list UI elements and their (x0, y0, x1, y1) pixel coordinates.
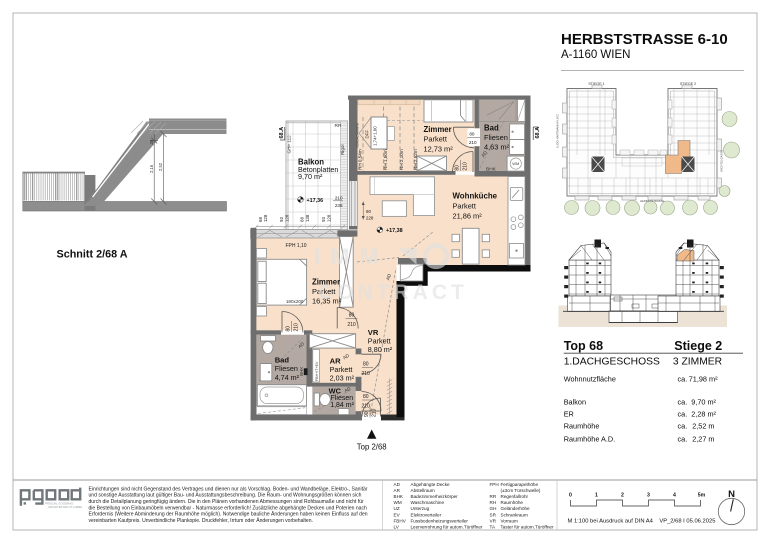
svg-text:Fertigparapethöhe: Fertigparapethöhe (501, 482, 539, 487)
svg-text:68.A: 68.A (535, 127, 541, 139)
svg-text:FPH 1,10: FPH 1,10 (285, 243, 306, 249)
svg-text:210: 210 (469, 140, 477, 145)
svg-text:68: 68 (300, 217, 305, 222)
svg-text:Raumhöhe A.D.: Raumhöhe A.D. (564, 434, 616, 443)
svg-text:138: 138 (305, 214, 310, 222)
svg-text:Fliesen: Fliesen (331, 395, 354, 402)
svg-text:4: 4 (673, 493, 676, 499)
svg-text:210: 210 (293, 323, 299, 332)
svg-text:Parkett: Parkett (424, 134, 447, 143)
svg-text:2: 2 (621, 493, 624, 499)
svg-text:A-1160 WIEN: A-1160 WIEN (561, 49, 630, 61)
svg-text:WM: WM (394, 500, 402, 505)
svg-text:210: 210 (347, 322, 356, 328)
svg-text:5m: 5m (698, 493, 706, 499)
svg-text:IMM: IMM (314, 244, 389, 270)
svg-text:AD: AD (394, 482, 401, 487)
svg-text:M 1:100 bei Ausdruck auf DIN A: M 1:100 bei Ausdruck auf DIN A4 VP_2/68 … (568, 519, 716, 525)
svg-text:LV: LV (394, 525, 400, 530)
svg-text:2,27 m: 2,27 m (692, 434, 714, 443)
svg-text:ca.: ca. (678, 397, 688, 406)
svg-text:LUDO-HARTMANN-PLATZ: LUDO-HARTMANN-PLATZ (556, 114, 560, 148)
svg-text:3: 3 (647, 493, 650, 499)
svg-text:2,28 m²: 2,28 m² (691, 410, 716, 419)
svg-text:GH: GH (490, 506, 497, 511)
svg-text:210: 210 (335, 195, 343, 200)
svg-text:80: 80 (349, 313, 355, 319)
svg-text:BHK: BHK (299, 366, 304, 376)
svg-text:2,03 m²: 2,03 m² (330, 373, 355, 382)
svg-text:4,63 m²: 4,63 m² (484, 143, 510, 152)
svg-text:Raumhöhe: Raumhöhe (501, 500, 524, 505)
svg-text:80: 80 (469, 131, 475, 136)
svg-text:238: 238 (335, 203, 343, 208)
svg-text:DFF: DFF (364, 130, 369, 139)
svg-text:durch die Detailplanung gering: durch die Detailplanung geringfügig ände… (89, 499, 365, 505)
svg-text:128: 128 (326, 214, 331, 222)
svg-text:+17,38: +17,38 (386, 228, 403, 234)
svg-text:FBHV: FBHV (394, 518, 407, 523)
svg-text:Bad: Bad (484, 124, 499, 133)
svg-text:,38: ,38 (149, 139, 154, 145)
svg-text:4,74 m²: 4,74 m² (275, 373, 300, 382)
svg-text:SR: SR (490, 512, 497, 517)
svg-text:ca.: ca. (678, 410, 688, 419)
svg-text:93: 93 (279, 217, 284, 222)
svg-text:80: 80 (285, 326, 291, 332)
svg-text:9,70 m²: 9,70 m² (298, 172, 323, 181)
svg-text:Elektroverteiler: Elektroverteiler (411, 512, 442, 517)
svg-text:WC: WC (329, 386, 342, 395)
svg-text:1,84 m²: 1,84 m² (330, 402, 354, 409)
svg-text:+17,36: +17,36 (307, 198, 324, 204)
svg-text:210: 210 (462, 162, 468, 171)
svg-text:RH 2,52m: RH 2,52m (413, 149, 418, 170)
svg-text:180x200: 180x200 (286, 299, 304, 304)
svg-text:Wohnnutzfläche: Wohnnutzfläche (564, 374, 616, 383)
svg-text:VR: VR (490, 518, 497, 523)
svg-text:Vorraum: Vorraum (501, 518, 519, 523)
svg-text:UZ: UZ (394, 506, 400, 511)
svg-text:WICHTELGASSE: WICHTELGASSE (720, 150, 724, 172)
svg-text:(±3cm Türschwelle): (±3cm Türschwelle) (501, 488, 541, 493)
svg-text:HERBSTSTRASSE 6-10: HERBSTSTRASSE 6-10 (561, 31, 728, 48)
svg-text:Abstellraum: Abstellraum (411, 488, 435, 493)
svg-text:68.A: 68.A (279, 127, 285, 139)
svg-text:Raumhöhe: Raumhöhe (564, 422, 600, 431)
svg-text:Erfordernis (Weitere Abminderu: Erfordernis (Weitere Abminderung der Rau… (89, 511, 368, 518)
svg-text:BHK: BHK (394, 494, 404, 499)
svg-text:9,70 m²: 9,70 m² (691, 397, 716, 406)
svg-text:80: 80 (363, 361, 369, 367)
svg-text:N: N (728, 489, 735, 500)
svg-text:ER: ER (564, 410, 574, 419)
svg-text:1,74+1,60: 1,74+1,60 (372, 126, 377, 146)
svg-text:71,98 m²: 71,98 m² (689, 374, 718, 383)
svg-text:210: 210 (372, 408, 378, 417)
svg-text:ca.: ca. (678, 422, 688, 431)
svg-text:RH: RH (490, 500, 497, 505)
svg-text:die Bestellung von Einbaumöbel: die Bestellung von Einbaumöbeln verwendb… (89, 505, 367, 511)
svg-text:HERBSTSTRASSE: HERBSTSTRASSE (640, 199, 665, 203)
svg-text:Leerverrohrung für autom.Türöf: Leerverrohrung für autom.Türöffner (411, 525, 483, 530)
svg-text:Fliesen: Fliesen (275, 364, 298, 373)
svg-text:WM: WM (512, 161, 519, 166)
svg-text:RH 1,50m: RH 1,50m (383, 149, 388, 170)
svg-text:68: 68 (258, 217, 263, 222)
svg-text:RH 2,10m: RH 2,10m (399, 149, 404, 170)
svg-text:80: 80 (363, 394, 369, 400)
svg-text:21,86 m²: 21,86 m² (453, 211, 483, 220)
svg-text:Einrichtungen sind nicht Gegen: Einrichtungen sind nicht Gegenstand des … (89, 486, 368, 492)
svg-text:90: 90 (366, 209, 371, 214)
svg-text:Fliesen: Fliesen (484, 133, 508, 142)
svg-text:GH= 112: GH= 112 (287, 135, 292, 154)
svg-text:Schnitt 2/68 A: Schnitt 2/68 A (57, 249, 128, 261)
svg-text:Badezimmerheizkörper: Badezimmerheizkörper (411, 494, 459, 499)
svg-text:Unterzug: Unterzug (411, 506, 430, 511)
svg-text:Geländerhöhe: Geländerhöhe (501, 506, 531, 511)
svg-text:Balkon: Balkon (564, 397, 586, 406)
svg-text:128: 128 (263, 214, 268, 222)
svg-text:Rigol: Rigol (340, 145, 345, 155)
svg-text:FBH+IT+EV: FBH+IT+EV (315, 361, 319, 381)
svg-text:Zimmer: Zimmer (424, 125, 452, 134)
svg-text:8,80 m²: 8,80 m² (368, 345, 393, 354)
svg-text:Stiege 2: Stiege 2 (674, 339, 722, 353)
svg-text:Schrankraum: Schrankraum (501, 512, 528, 517)
svg-text:80: 80 (454, 165, 460, 171)
svg-text:ca.: ca. (678, 374, 688, 383)
svg-text:AR: AR (394, 488, 401, 493)
svg-text:RR: RR (335, 123, 342, 129)
svg-text:Regenfallrohr: Regenfallrohr (501, 494, 529, 499)
svg-text:128: 128 (284, 214, 289, 222)
svg-text:RH 0,54m: RH 0,54m (358, 149, 363, 170)
svg-text:93: 93 (321, 217, 326, 222)
svg-text:EV: EV (394, 512, 401, 517)
svg-text:Taster für autom.Türöffner: Taster für autom.Türöffner (501, 525, 554, 530)
svg-text:vereinbarten Kaufpreis. Unverb: vereinbarten Kaufpreis. Unverbindliche P… (89, 517, 313, 524)
svg-text:1: 1 (595, 493, 598, 499)
svg-text:228: 228 (366, 216, 374, 221)
svg-text:1.DACHGESCHOSS: 1.DACHGESCHOSS (564, 357, 660, 368)
svg-text:3 ZIMMER: 3 ZIMMER (673, 357, 722, 368)
svg-text:210: 210 (362, 404, 371, 410)
svg-text:90: 90 (364, 411, 370, 417)
svg-text:Fussbodenheizungsverteiler: Fussbodenheizungsverteiler (411, 518, 469, 523)
svg-text:FPH: FPH (490, 482, 499, 487)
svg-text:Wohnküche: Wohnküche (453, 192, 498, 201)
svg-text:Waschmaschine: Waschmaschine (411, 500, 445, 505)
svg-text:2,16: 2,16 (149, 164, 154, 173)
svg-text:ca.: ca. (678, 434, 688, 443)
svg-text:Abgehängte Decke: Abgehängte Decke (411, 482, 451, 487)
svg-text:ARCHITEKTEN ZT-GMBH: ARCHITEKTEN ZT-GMBH (48, 505, 82, 509)
svg-text:VORDACHKANTE: VORDACHKANTE (356, 123, 360, 148)
svg-text:Top 2/68: Top 2/68 (357, 443, 387, 452)
svg-text:BHK: BHK (486, 166, 497, 172)
svg-text:2,52: 2,52 (158, 162, 163, 171)
svg-text:CONTRACT: CONTRACT (318, 281, 468, 304)
svg-text:und sonstige Ausstattung laut: und sonstige Ausstattung laut gültiger B… (89, 493, 362, 499)
svg-text:RR: RR (490, 494, 497, 499)
svg-text:12,73 m²: 12,73 m² (424, 144, 454, 153)
svg-text:TA: TA (490, 525, 496, 530)
svg-text:Top 68: Top 68 (564, 339, 603, 353)
svg-text:2,52 m: 2,52 m (692, 422, 714, 431)
svg-text:210: 210 (362, 371, 371, 377)
svg-text:0: 0 (569, 493, 572, 499)
svg-text:Parkett: Parkett (453, 201, 476, 210)
